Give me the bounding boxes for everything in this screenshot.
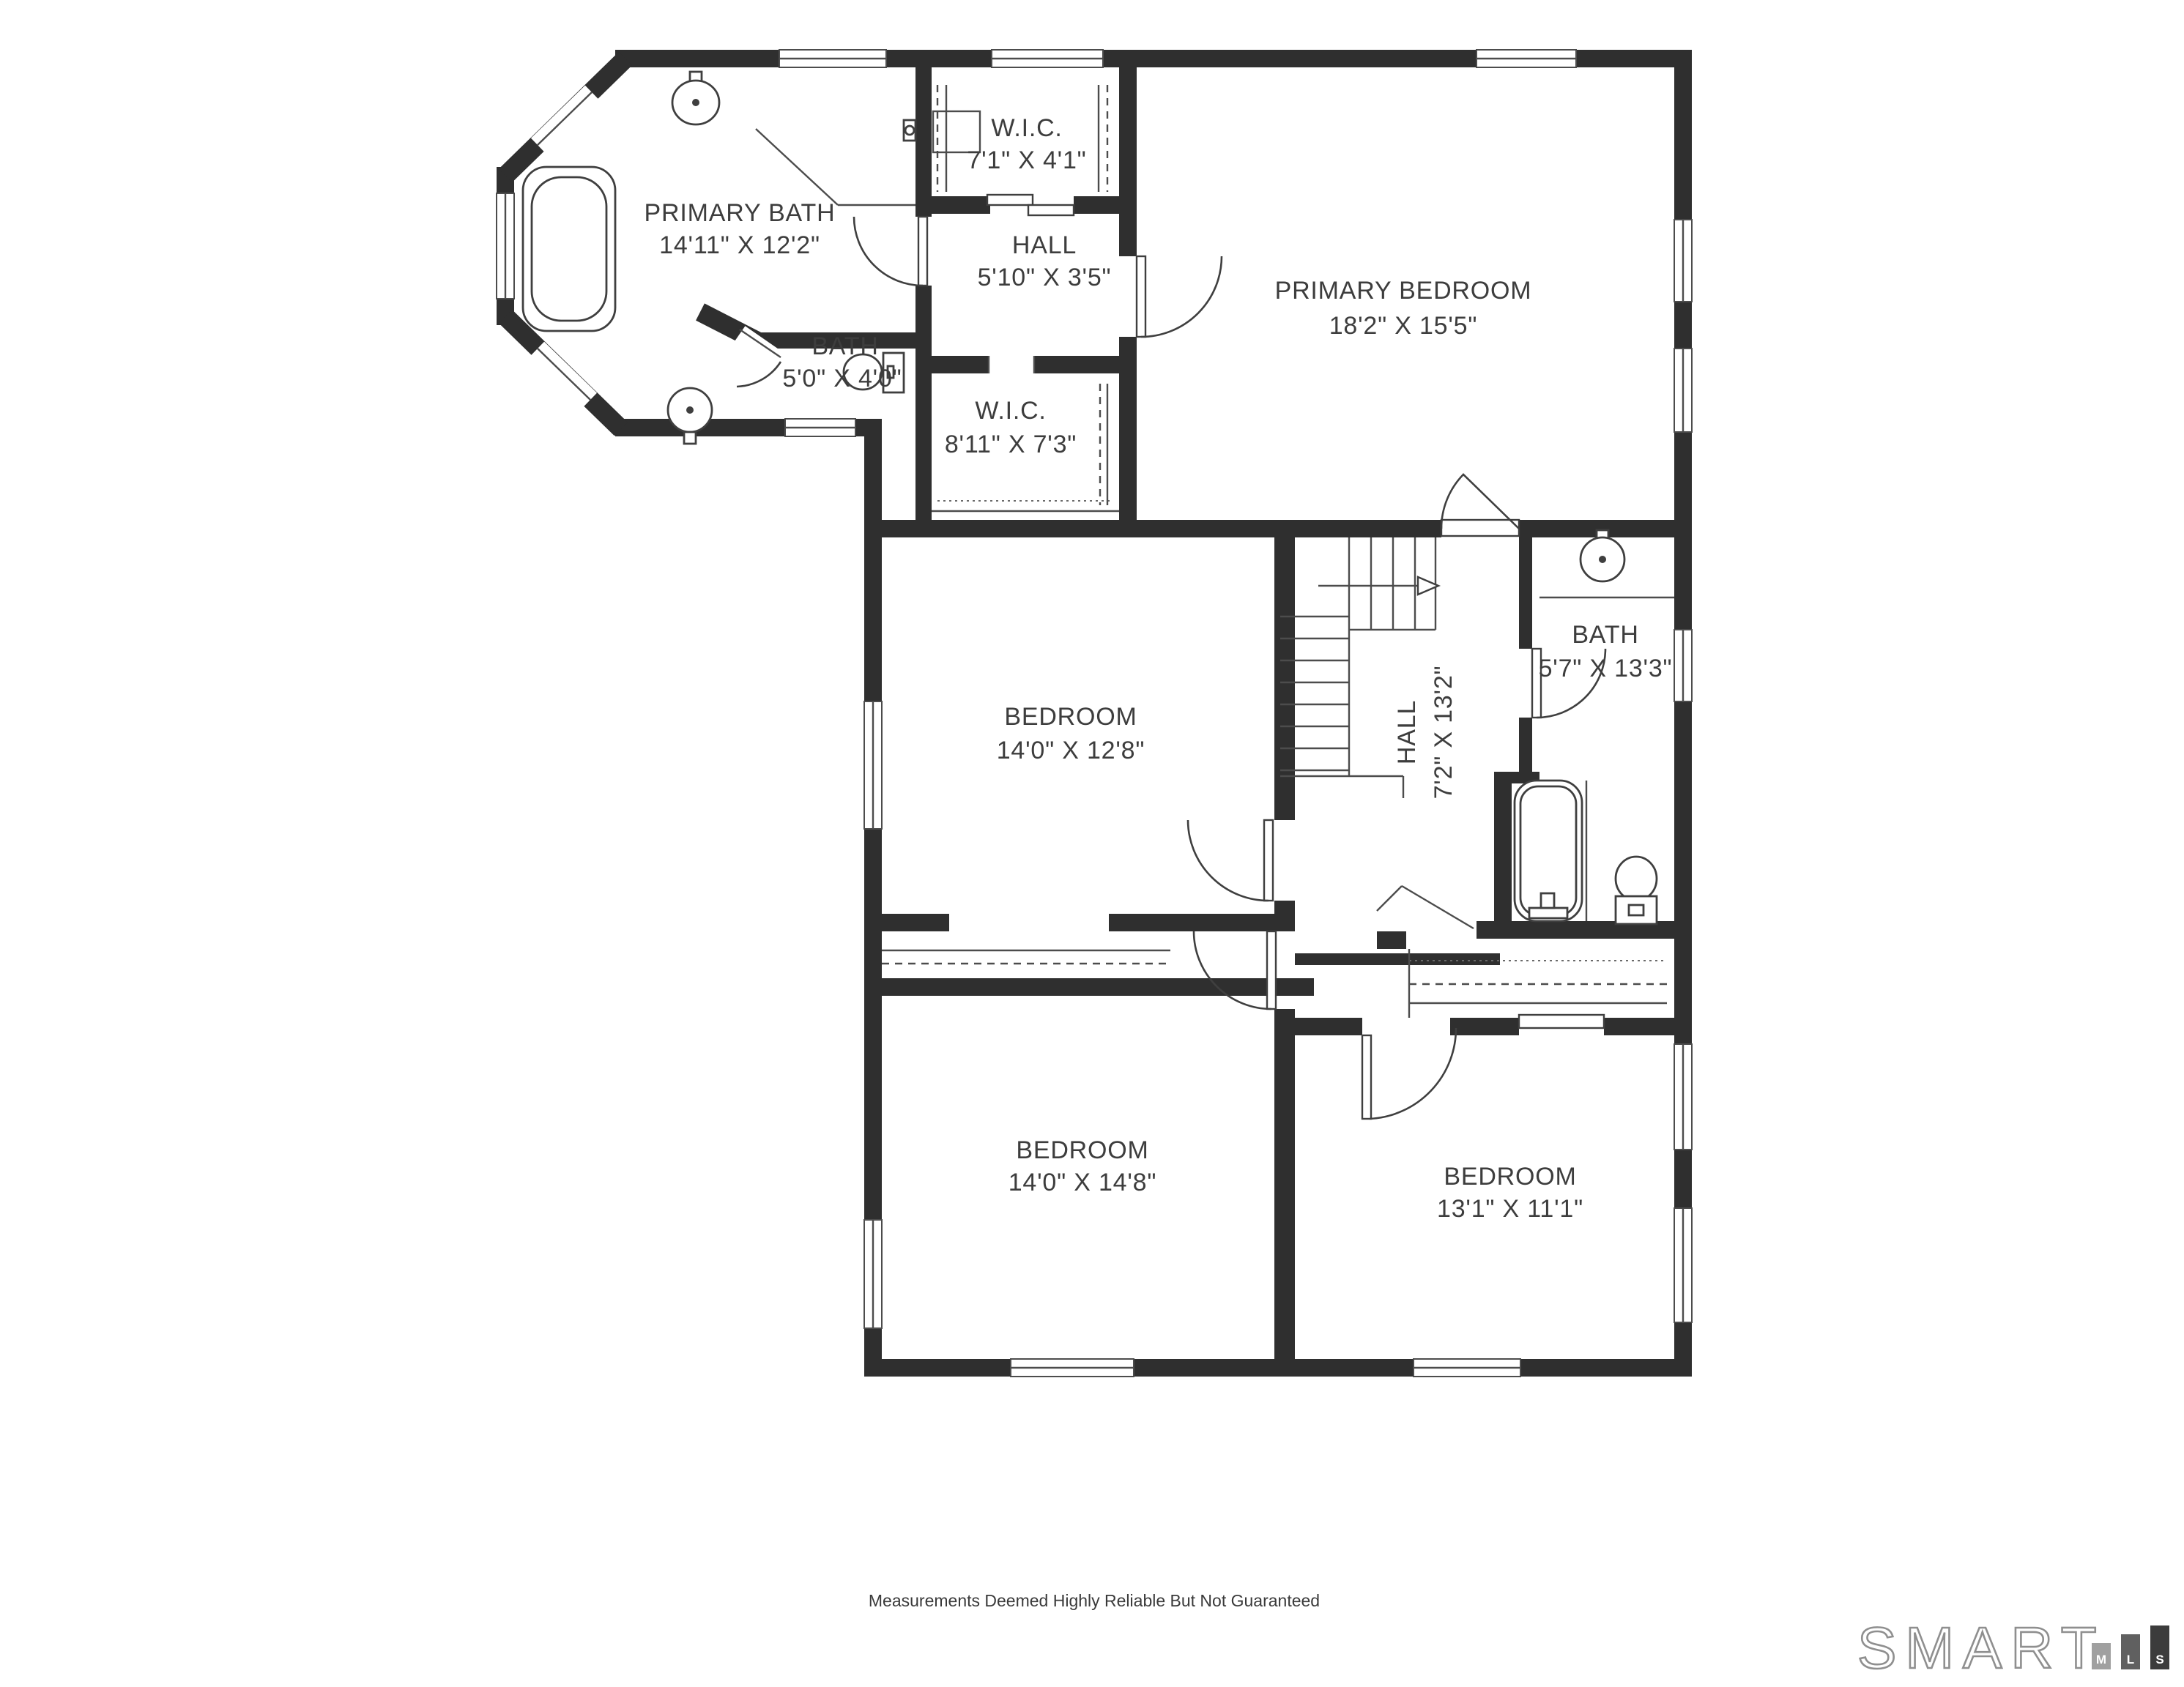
- window: [864, 1220, 882, 1328]
- dims-wic-lower: 8'11" X 7'3": [945, 431, 1077, 458]
- sink-primary-1: [672, 72, 719, 124]
- wall-bottom: [864, 1359, 1692, 1377]
- wall-wic-upper-left: [915, 67, 932, 196]
- dims-bath-main: 5'7" X 13'3": [1539, 655, 1673, 682]
- wall-bathmain-left-lower: [1519, 718, 1532, 776]
- wall-bed-br-top-b: [1450, 1018, 1519, 1035]
- window: [1674, 220, 1692, 302]
- closet-bifold-mark: [1377, 886, 1474, 928]
- dims-primary-bath: 14'11" X 12'2": [659, 231, 820, 259]
- dims-bedroom-middle: 14'0" X 12'8": [997, 737, 1145, 764]
- dims-bedroom-bottom-left: 14'0" X 14'8": [1009, 1169, 1157, 1196]
- wall-hall-wic2-divider-a: [932, 356, 989, 373]
- door-primary-bedroom-stairs: [1441, 474, 1519, 536]
- wall-closetA-bottom: [882, 978, 1314, 996]
- door-bedroom-bottom-left: [1194, 931, 1276, 1009]
- window: [1674, 1044, 1692, 1150]
- window: [785, 419, 855, 436]
- dims-wic-upper: 7'1" X 4'1": [967, 146, 1086, 174]
- door-bedroom-middle: [1188, 820, 1273, 901]
- window: [1414, 1359, 1520, 1377]
- wall-bed-br-top-c: [1604, 1018, 1674, 1035]
- wall-hall-left-lower: [915, 286, 932, 332]
- dims-hall-stairs: 7'2" X 13'2": [1430, 666, 1457, 800]
- wall-bed-mid-right-b: [1274, 901, 1295, 931]
- wall-main-horizontal-left: [864, 520, 1441, 537]
- wall-closetA-top-b: [1109, 914, 1274, 931]
- wall-bedrooms-divider: [1274, 1009, 1295, 1359]
- wall-wic-lower-left: [915, 332, 932, 520]
- wall-bed-mid-right-a: [1274, 520, 1295, 820]
- window: [1477, 50, 1576, 67]
- label-hall-stairs: HALL: [1393, 700, 1421, 764]
- window: [779, 50, 886, 67]
- window: [497, 193, 514, 299]
- window: [864, 701, 882, 829]
- wall-pbedroom-left-lower: [1119, 337, 1137, 520]
- label-hall-upper: HALL: [1012, 231, 1077, 259]
- door-bedroom-bottom-right: [1362, 1028, 1456, 1119]
- smart-mls-logo: SMART M L S: [1857, 1615, 2169, 1680]
- room-labels: PRIMARY BATH 14'11" X 12'2" W.I.C. 7'1" …: [645, 114, 1673, 1223]
- wall-closetB-stub: [1377, 931, 1406, 949]
- window: [1674, 1208, 1692, 1322]
- logo-bar-m-letter: M: [2096, 1653, 2106, 1666]
- logo-bar-s-letter: S: [2155, 1653, 2163, 1666]
- closet-door-bedroom-bottom-right: [1519, 1015, 1604, 1028]
- toilet-bath-main: [1616, 857, 1657, 924]
- wall-bed-br-top-a: [1295, 1018, 1362, 1035]
- dims-bath-small: 5'0" X 4'0": [782, 365, 902, 392]
- footer: Measurements Deemed Highly Reliable But …: [869, 1591, 2169, 1680]
- floor-plan-drawing: PRIMARY BATH 14'11" X 12'2" W.I.C. 7'1" …: [0, 0, 2184, 1687]
- wall-bath-bottom-right: [855, 419, 882, 436]
- bathtub-primary: [523, 167, 615, 331]
- label-bath-main: BATH: [1572, 621, 1638, 649]
- label-wic-upper: W.I.C.: [991, 114, 1062, 142]
- bathtub-main: [1515, 781, 1582, 921]
- label-primary-bath: PRIMARY BATH: [645, 199, 836, 227]
- door-primary-bedroom-hall: [1137, 256, 1222, 337]
- wall-wic-hall-divider-a: [932, 196, 990, 214]
- label-bath-small: BATH: [811, 332, 878, 360]
- logo-bar-l-letter: L: [2127, 1653, 2134, 1666]
- label-primary-bedroom: PRIMARY BEDROOM: [1275, 277, 1532, 305]
- wall-bathmain-left-upper: [1519, 520, 1532, 649]
- disclaimer-text: Measurements Deemed Highly Reliable But …: [869, 1591, 1320, 1610]
- wall-hall-left-jamb: [915, 196, 932, 217]
- wall-tub-alcove-left: [1494, 772, 1512, 939]
- window-bay-diagonal: [538, 92, 592, 145]
- dims-primary-bedroom: 18'2" X 15'5": [1329, 312, 1478, 340]
- window: [1011, 1359, 1134, 1377]
- label-bedroom-middle: BEDROOM: [1004, 703, 1137, 731]
- door-primary-bath: [854, 217, 927, 286]
- window: [1674, 349, 1692, 432]
- label-bedroom-bottom-left: BEDROOM: [1016, 1136, 1148, 1164]
- label-wic-lower: W.I.C.: [975, 397, 1046, 425]
- wall-closetA-top-a: [864, 914, 949, 931]
- dims-hall-upper: 5'10" X 3'5": [978, 264, 1112, 291]
- wall-wic-hall-divider-b: [1074, 196, 1119, 214]
- wall-hall-bottom: [1295, 953, 1500, 965]
- floor-plan-page: PRIMARY BATH 14'11" X 12'2" W.I.C. 7'1" …: [0, 0, 2184, 1687]
- window: [1674, 630, 1692, 701]
- wall-hall-wic2-divider-b: [1034, 356, 1119, 373]
- window: [992, 50, 1103, 67]
- dims-bedroom-bottom-right: 13'1" X 11'1": [1437, 1195, 1583, 1223]
- doorway-wic-upper-sliding: [987, 195, 1074, 215]
- doorway-wic-lower: [989, 356, 1034, 373]
- shower-fixture: [904, 120, 915, 141]
- label-bedroom-bottom-right: BEDROOM: [1444, 1163, 1576, 1191]
- window-bay-diagonal: [538, 349, 590, 400]
- logo-brand-text: SMART: [1857, 1615, 2106, 1680]
- wall-pbedroom-left-upper: [1119, 67, 1137, 256]
- stairs-up-arrow: [1318, 577, 1438, 595]
- sink-bath-main: [1581, 530, 1624, 581]
